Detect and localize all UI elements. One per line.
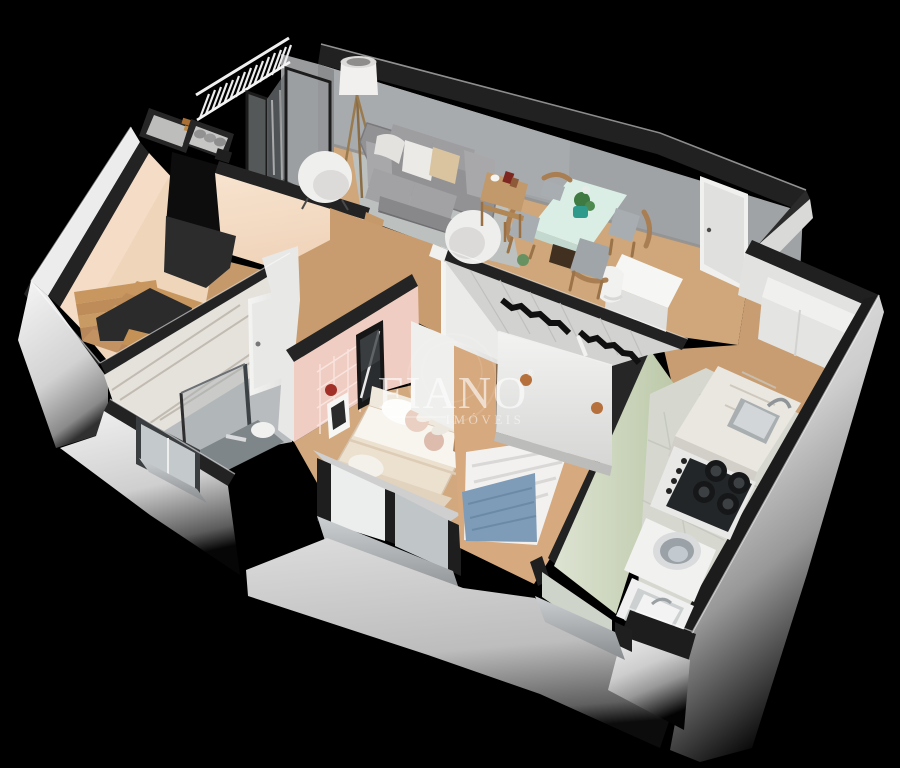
svg-text:IMÓVEIS: IMÓVEIS <box>446 412 525 427</box>
svg-text:FIANO: FIANO <box>378 367 529 418</box>
svg-text:®: ® <box>527 368 534 378</box>
